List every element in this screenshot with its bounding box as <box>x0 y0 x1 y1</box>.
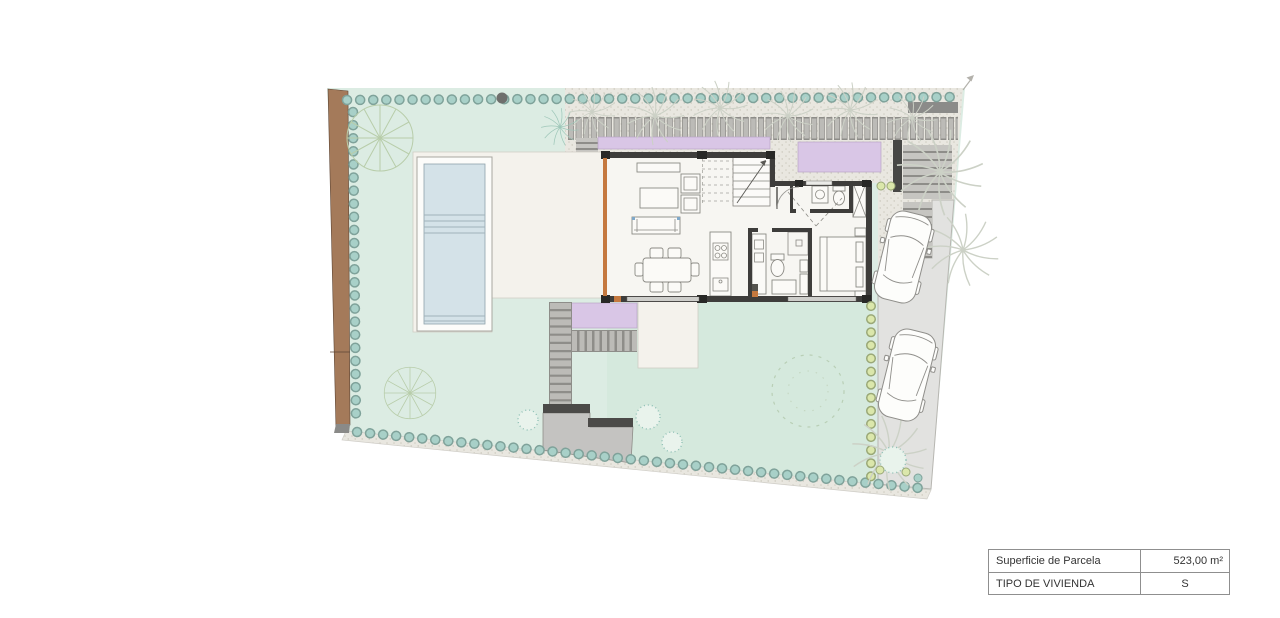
bath-shelf <box>800 260 808 272</box>
dining-table <box>643 258 691 282</box>
bath-bench <box>772 280 796 294</box>
dining-chair <box>650 282 663 292</box>
pool-water <box>424 164 485 324</box>
planter-north-1 <box>598 137 770 149</box>
wardrobe <box>853 183 866 217</box>
sofa <box>632 217 680 234</box>
summary-table: Superficie de Parcela 523,00 m² TIPO DE … <box>988 549 1230 595</box>
table-row: Superficie de Parcela 523,00 m² <box>989 550 1229 572</box>
dining-chair <box>668 282 681 292</box>
planter-north-2 <box>798 142 881 172</box>
parcel-area-label: Superficie de Parcela <box>989 550 1141 572</box>
site-plan <box>0 0 1280 618</box>
pool <box>417 157 492 331</box>
bath-shelf <box>800 274 808 294</box>
dining-chair <box>635 263 643 276</box>
sliding-door-frame <box>603 158 607 296</box>
bed <box>820 237 866 291</box>
tree <box>347 105 413 171</box>
kitchen-island <box>710 232 731 296</box>
walkway-horizontal <box>572 330 637 352</box>
dining-chair <box>691 263 699 276</box>
toilet <box>833 186 845 205</box>
walkway-vertical <box>549 302 572 408</box>
entrance-plant <box>877 182 885 190</box>
south-patio <box>638 297 698 368</box>
hedge-dark-shrub <box>497 93 508 104</box>
sideboard <box>637 163 680 172</box>
dining-chair <box>668 248 681 258</box>
dwelling-type-label: TIPO DE VIVIENDA <box>989 573 1141 594</box>
washbasin <box>812 186 828 203</box>
window <box>806 181 832 185</box>
table-row: TIPO DE VIVIENDA S <box>989 572 1229 594</box>
entrance-plant <box>887 182 895 190</box>
floorplan-page: Superficie de Parcela 523,00 m² TIPO DE … <box>0 0 1280 618</box>
dwelling-type-value: S <box>1141 578 1229 590</box>
parcel-area-value: 523,00 m² <box>1141 555 1229 567</box>
dining-chair <box>650 248 663 258</box>
nightstand <box>855 228 866 236</box>
toilet <box>771 254 784 277</box>
entrance-gate <box>908 102 958 113</box>
coffee-table <box>640 188 678 208</box>
north-arrow-icon <box>963 75 974 90</box>
planter-south <box>570 303 637 328</box>
tree <box>384 367 435 418</box>
